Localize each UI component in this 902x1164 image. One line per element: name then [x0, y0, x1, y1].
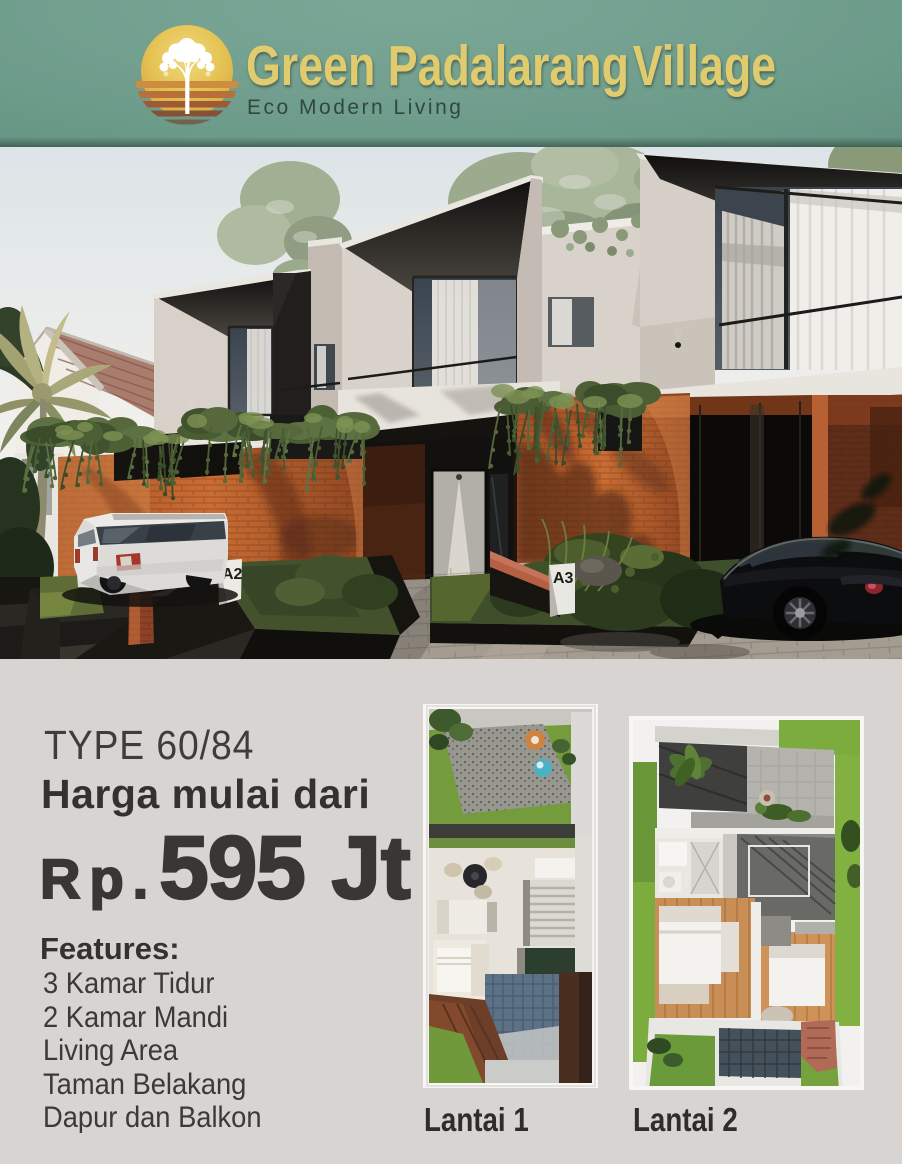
svg-text:A3: A3 [553, 570, 574, 587]
